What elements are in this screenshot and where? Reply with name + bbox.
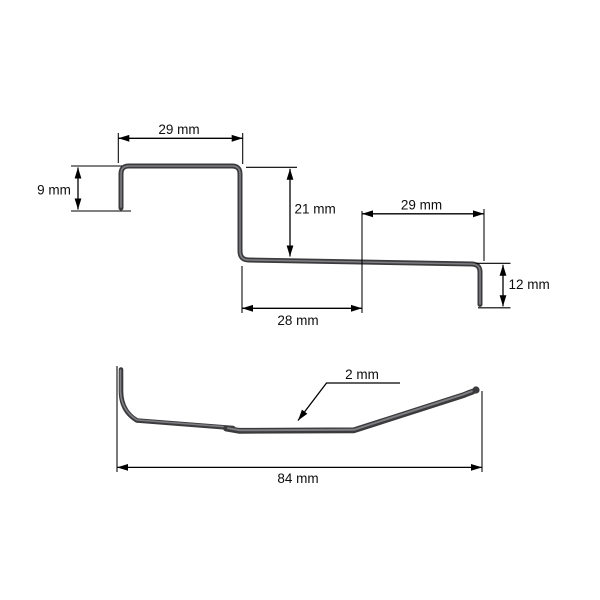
wire-highlight-side-view-right: [228, 391, 472, 430]
dim-label-bottom-middle-width: 28 mm: [277, 313, 318, 328]
dim-label-left-height: 9 mm: [37, 183, 71, 198]
dim-wire-diameter: 2 mm: [298, 367, 400, 421]
wire-profile-side-view-right: [226, 392, 473, 431]
dim-label-wire-diameter: 2 mm: [345, 367, 379, 382]
wire-profile-top-view: [121, 166, 480, 305]
dim-right-height: 12 mm: [476, 263, 550, 308]
wire-profile-side-view-left: [121, 370, 233, 429]
leader-line: [298, 383, 400, 421]
dim-top-left-width: 29 mm: [118, 122, 242, 164]
wire-bending-diagram: 29 mm 9 mm 21 mm 28 mm: [0, 0, 600, 600]
wire-highlight-top-view: [121, 166, 480, 304]
dim-label-overall-length: 84 mm: [277, 471, 318, 486]
dim-bottom-middle-width: 28 mm: [242, 211, 362, 328]
dim-label-top-right-width: 29 mm: [401, 198, 442, 213]
dim-top-right-width: 29 mm: [362, 198, 484, 262]
side-view: 2 mm 84 mm: [117, 366, 482, 486]
wire-end-tip: [472, 386, 479, 393]
dim-overall-length: 84 mm: [117, 366, 482, 486]
dim-left-height: 9 mm: [37, 166, 131, 211]
dim-middle-height: 21 mm: [246, 167, 336, 256]
top-view: 29 mm 9 mm 21 mm 28 mm: [37, 122, 550, 328]
dim-label-top-left-width: 29 mm: [158, 122, 199, 137]
dim-label-middle-height: 21 mm: [295, 202, 336, 217]
dim-label-right-height: 12 mm: [509, 277, 550, 292]
technical-drawing-canvas: 29 mm 9 mm 21 mm 28 mm: [0, 0, 600, 600]
